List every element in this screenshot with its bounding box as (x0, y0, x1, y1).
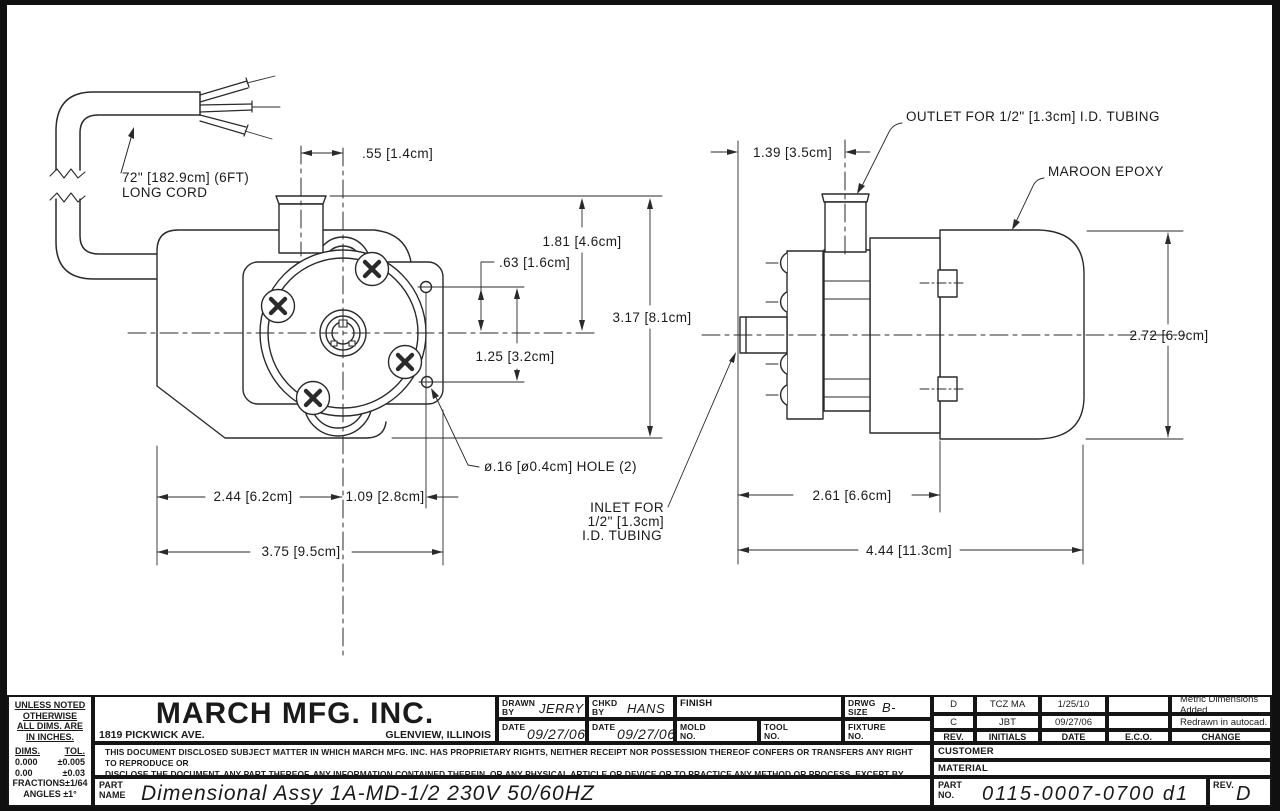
cord-wires (200, 76, 280, 139)
note-inlet-line3: I.D. TUBING (582, 528, 662, 543)
dim-hole-spacing: 1.25 [3.2cm] (475, 349, 554, 364)
housing-mid (824, 250, 870, 411)
rev-row-c-eco (1107, 714, 1170, 730)
company-name: MARCH MFG. INC. (95, 699, 495, 729)
rev-row-d-initials: TCZ MA (975, 695, 1040, 714)
finish-cell: FINISH (675, 695, 843, 719)
chkd-date-cell: DATE 09/27/06 (587, 719, 675, 743)
rev-header-initials: INITIALS (975, 730, 1040, 743)
drawn-by-value: JERRY (539, 701, 584, 716)
dim-overall-width: 3.75 [9.5cm] (261, 544, 340, 559)
dim-hole-from-center: 1.09 [2.8cm] (345, 489, 424, 504)
note-mounting-hole: ø.16 [ø0.4cm] HOLE (2) (484, 459, 637, 474)
rev-row-c-initials: JBT (975, 714, 1040, 730)
dim-overall-height: 3.17 [8.1cm] (612, 310, 691, 325)
rev-header-rev: REV. (932, 730, 975, 743)
tolerance-box: UNLESS NOTED OTHERWISE ALL DIMS. ARE IN … (7, 695, 93, 807)
customer-cell: CUSTOMER (932, 743, 1272, 760)
rev-row-d-eco (1107, 695, 1170, 714)
dim-overall-length: 4.44 [11.3cm] (866, 543, 952, 558)
note-epoxy: MAROON EPOXY (1048, 164, 1164, 179)
tol-fractions: FRACTIONS±1/64 (9, 778, 91, 789)
rev-row-c-change: Redrawn in autocad. (1170, 714, 1272, 730)
part-name-cell: PART NAME Dimensional Assy 1A-MD-1/2 230… (93, 777, 932, 807)
tol-dims-header: DIMS. (15, 746, 40, 757)
engineering-drawing-sheet: 72" [182.9cm] (6FT) LONG CORD (0, 0, 1280, 811)
tool-no-cell: TOOL NO. (759, 719, 843, 743)
drawing-area: 72" [182.9cm] (6FT) LONG CORD (0, 0, 1280, 695)
company-city: GLENVIEW, ILLINOIS (385, 729, 491, 741)
dim-port-offset: .55 [1.4cm] (362, 146, 433, 161)
material-cell: MATERIAL (932, 760, 1272, 777)
chkd-by-cell: CHKD BY HANS (587, 695, 675, 719)
drawn-by-cell: DRAWN BY JERRY (497, 695, 587, 719)
tolerance-note: UNLESS NOTED (9, 700, 91, 711)
part-no-cell: PART NO. 0115-0007-0700 d1 (932, 777, 1208, 807)
drawn-date-value: 09/27/06 (527, 726, 586, 742)
rev-cell: REV. D (1208, 777, 1272, 807)
dim-overall-height-side: 2.72 [6.9cm] (1129, 328, 1208, 343)
fixture-no-cell: FIXTURE NO. (843, 719, 932, 743)
part-name-value: Dimensional Assy 1A-MD-1/2 230V 50/60HZ (141, 782, 595, 806)
rev-row-d-rev: D (932, 695, 975, 714)
rev-header-change: CHANGE (1170, 730, 1272, 743)
chkd-by-value: HANS (627, 701, 665, 716)
chkd-date-value: 09/27/06 (617, 726, 676, 742)
cord-note-line1: 72" [182.9cm] (6FT) (122, 170, 249, 185)
rev-row-d-change: Metric Dimensions Added. (1170, 695, 1272, 714)
dim-body-length: 2.61 [6.6cm] (812, 488, 891, 503)
rev-row-c-date: 09/27/06 (1040, 714, 1107, 730)
company-box: MARCH MFG. INC. 1819 PICKWICK AVE. GLENV… (93, 695, 497, 743)
dim-outlet-offset: 1.39 [3.5cm] (753, 145, 832, 160)
disclaimer: THIS DOCUMENT DISCLOSED SUBJECT MATTER I… (93, 743, 932, 777)
tol-tol-header: TOL. (65, 746, 85, 757)
dim-hole-above-center: .63 [1.6cm] (499, 255, 570, 270)
part-no-value: 0115-0007-0700 d1 (982, 783, 1189, 806)
dim-port-height: 1.81 [4.6cm] (542, 234, 621, 249)
note-inlet-line1: INLET FOR (590, 500, 664, 515)
front-view (157, 196, 443, 438)
dim-center-from-left: 2.44 [6.2cm] (213, 489, 292, 504)
tol-angles: ANGLES ±1° (9, 789, 91, 800)
drwg-size-cell: DRWG SIZE B-11x17 (843, 695, 932, 719)
mold-no-cell: MOLD NO. (675, 719, 759, 743)
rev-row-c-rev: C (932, 714, 975, 730)
rev-value: D (1236, 783, 1250, 806)
company-address: 1819 PICKWICK AVE. (99, 729, 205, 741)
rev-row-d-date: 1/25/10 (1040, 695, 1107, 714)
rev-header-eco: E.C.O. (1107, 730, 1170, 743)
cord-note: 72" [182.9cm] (6FT) LONG CORD (121, 127, 249, 200)
side-view (740, 194, 1084, 439)
note-inlet-line2: 1/2" [1.3cm] (588, 514, 664, 529)
note-outlet: OUTLET FOR 1/2" [1.3cm] I.D. TUBING (906, 109, 1160, 124)
rev-header-date: DATE (1040, 730, 1107, 743)
drawn-date-cell: DATE 09/27/06 (497, 719, 587, 743)
cord-note-line2: LONG CORD (122, 185, 207, 200)
